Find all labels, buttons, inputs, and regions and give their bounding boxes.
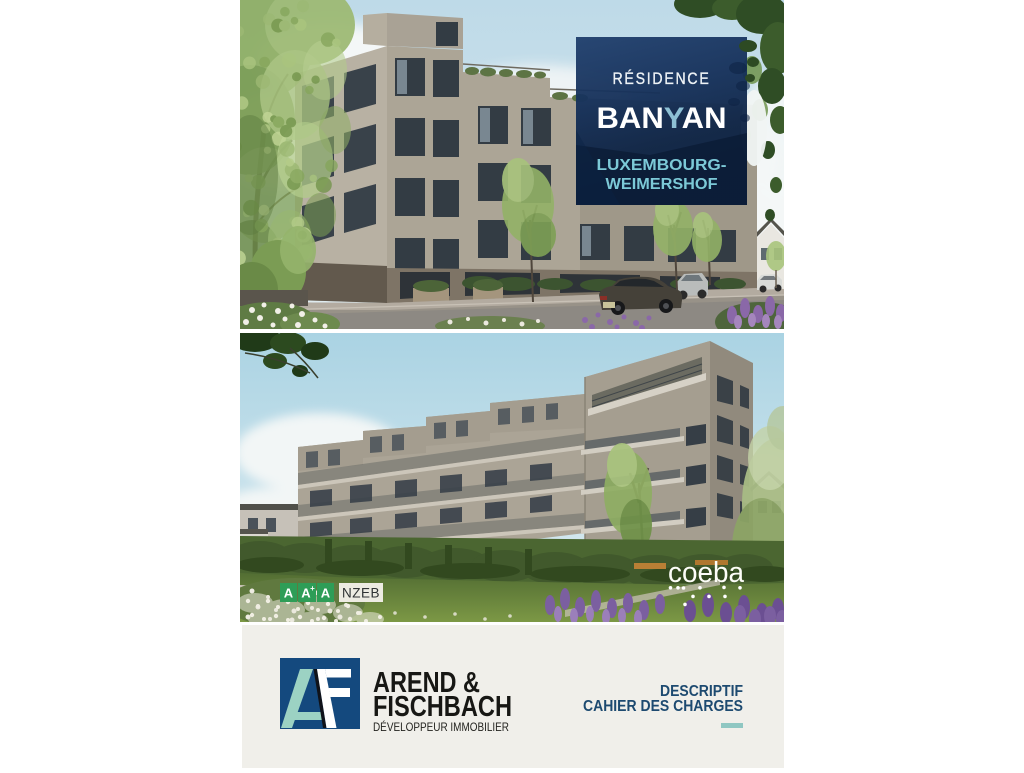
svg-text:FISCHBACH: FISCHBACH <box>373 691 512 723</box>
svg-text:WEIMERSHOF: WEIMERSHOF <box>606 176 718 193</box>
svg-text:A: A <box>284 586 294 601</box>
svg-text:BANYAN: BANYAN <box>597 102 727 135</box>
svg-text:CAHIER DES CHARGES: CAHIER DES CHARGES <box>583 698 743 715</box>
svg-text:DÉVELOPPEUR IMMOBILIER: DÉVELOPPEUR IMMOBILIER <box>373 721 509 734</box>
svg-text:NZEB: NZEB <box>342 586 380 601</box>
svg-text:RÉSIDENCE: RÉSIDENCE <box>613 69 711 88</box>
svg-text:LUXEMBOURG-: LUXEMBOURG- <box>597 157 727 174</box>
svg-text:coeba: coeba <box>668 557 745 589</box>
svg-text:A: A <box>321 586 331 601</box>
svg-text:+: + <box>310 584 315 593</box>
